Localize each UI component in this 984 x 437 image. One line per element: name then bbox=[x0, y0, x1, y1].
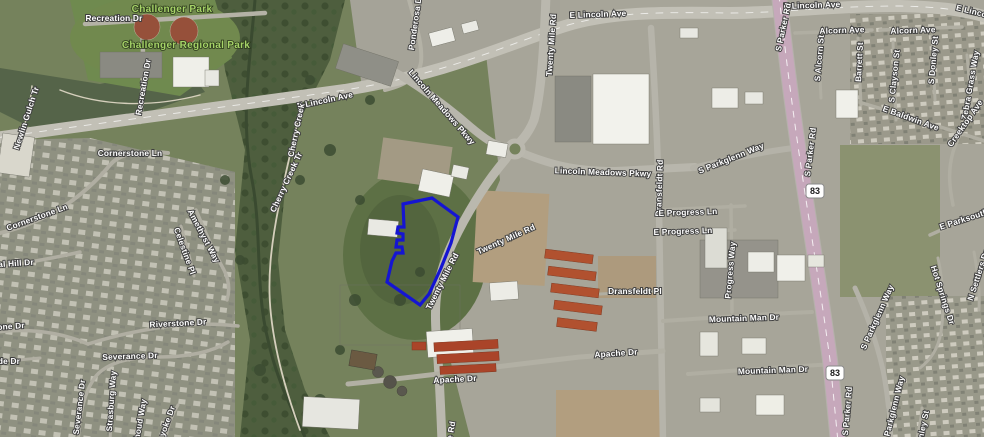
roundabout bbox=[507, 141, 523, 157]
road-label: Alcorn Ave bbox=[890, 24, 936, 36]
road-label: Dransfeldt Pl bbox=[608, 286, 662, 296]
road-label: E Progress Ln bbox=[653, 225, 712, 237]
park-label: Challenger Regional Park bbox=[122, 40, 250, 51]
big-box-store bbox=[593, 74, 649, 144]
shield-number: 83 bbox=[830, 368, 840, 378]
park-label: Challenger Park bbox=[132, 4, 213, 15]
route-83-shield: 83 bbox=[826, 366, 844, 380]
road-label: Severance Dr bbox=[102, 350, 158, 362]
route-83-shield: 83 bbox=[806, 184, 824, 198]
road-label: E Progress Ln bbox=[658, 206, 717, 218]
road-label: one Dr bbox=[0, 320, 26, 332]
road-label: Cornerstone Ln bbox=[98, 148, 163, 158]
road-label: Alcorn Ave bbox=[819, 24, 865, 36]
road-label: Barrett St bbox=[853, 42, 865, 82]
road-label: E Lincoln Ave bbox=[569, 8, 626, 20]
map-canvas[interactable]: 8383 Recreation DrRecreation DrNewlin Gu… bbox=[0, 0, 984, 437]
shield-number: 83 bbox=[810, 186, 820, 196]
road-label: de Dr bbox=[0, 356, 21, 366]
school-building bbox=[173, 57, 209, 87]
